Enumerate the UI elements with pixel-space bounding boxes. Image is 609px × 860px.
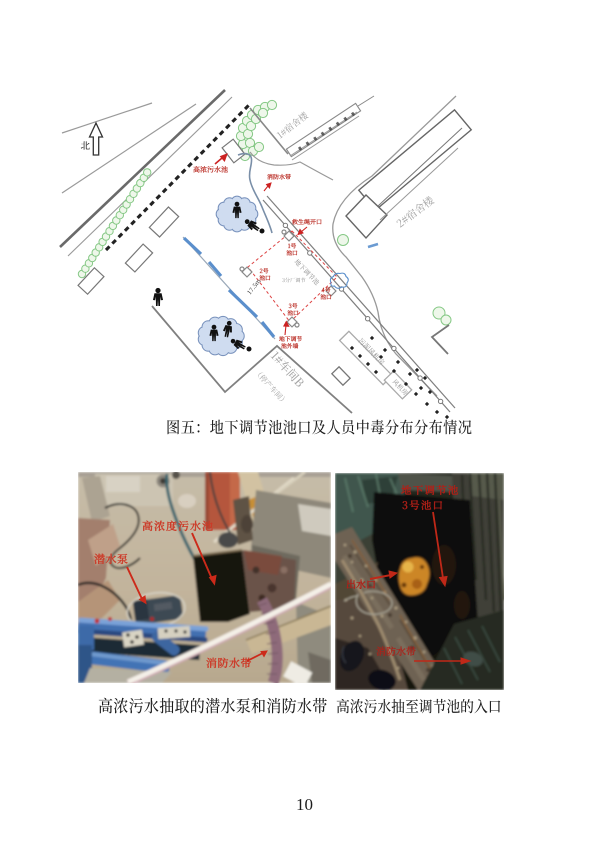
svg-text:3号池口: 3号池口 (402, 498, 444, 513)
svg-text:高浓度污水池: 高浓度污水池 (142, 518, 214, 534)
svg-text:救生绳开口: 救生绳开口 (292, 217, 322, 226)
svg-text:北: 北 (81, 138, 91, 152)
svg-text:池口: 池口 (320, 292, 332, 301)
svg-text:高浓污水池: 高浓污水池 (193, 165, 228, 175)
svg-text:地下调节池: 地下调节池 (401, 483, 460, 498)
svg-text:池外墙: 池外墙 (281, 341, 299, 350)
svg-text:消防水带: 消防水带 (376, 643, 416, 658)
svg-text:池口: 池口 (286, 248, 298, 257)
svg-text:池口: 池口 (287, 308, 299, 317)
svg-text:消防水带: 消防水带 (206, 655, 252, 671)
svg-text:池口: 池口 (259, 273, 271, 282)
svg-text:2#宿舍楼: 2#宿舍楼 (393, 193, 437, 232)
svg-text:潜水泵: 潜水泵 (94, 551, 129, 567)
svg-text:消防水带: 消防水带 (267, 172, 291, 181)
svg-text:3分厂调节: 3分厂调节 (282, 277, 306, 284)
